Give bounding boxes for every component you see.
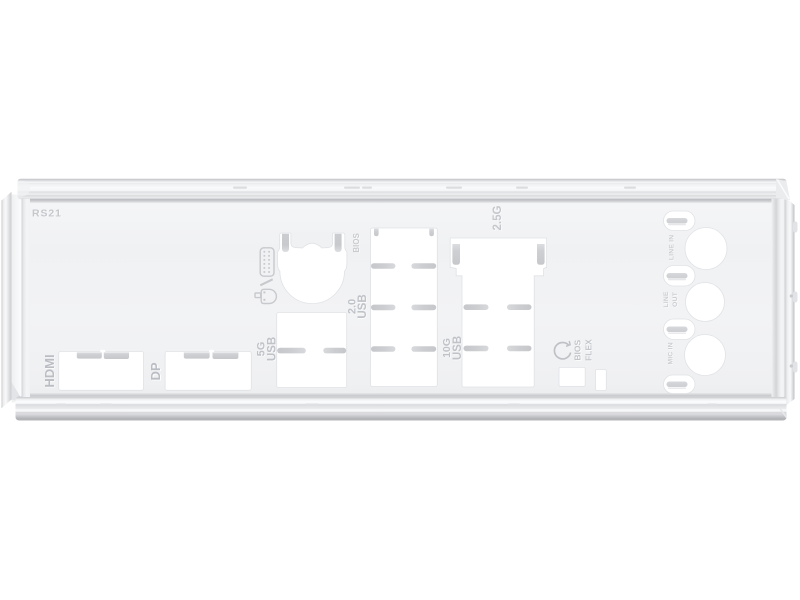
svg-text:RS21: RS21 — [32, 208, 62, 220]
svg-text:DP: DP — [148, 362, 163, 380]
svg-text:BIOS: BIOS — [352, 233, 361, 253]
svg-text:MIC IN: MIC IN — [668, 342, 675, 364]
svg-text:LINE: LINE — [663, 291, 670, 308]
svg-text:FLEX: FLEX — [583, 339, 593, 361]
svg-text:USB: USB — [452, 336, 464, 360]
svg-text:BIOS: BIOS — [573, 339, 583, 360]
svg-text:2.5G: 2.5G — [492, 205, 504, 230]
svg-text:LINE IN: LINE IN — [669, 235, 676, 261]
svg-text:USB: USB — [357, 294, 369, 318]
svg-text:HDMI: HDMI — [42, 354, 57, 387]
svg-text:OUT: OUT — [672, 291, 679, 307]
